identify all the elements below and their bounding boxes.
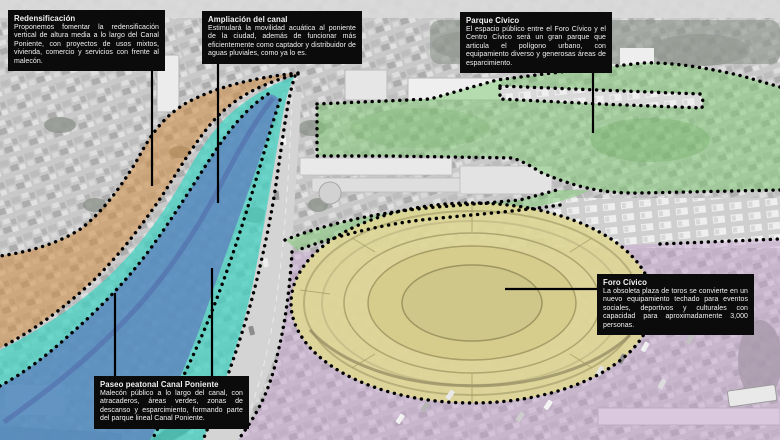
annotation-title: Paseo peatonal Canal Poniente [100, 380, 243, 390]
annotation-ampliacion-canal: Ampliación del canal Estimulará la movil… [202, 11, 362, 64]
annotation-foro-civico: Foro Cívico La obsoleta plaza de toros s… [597, 274, 754, 335]
annotation-body: Estimulará la movilidad acuática al poni… [208, 25, 356, 59]
annotation-paseo-peatonal: Paseo peatonal Canal Poniente Malecón pú… [94, 376, 249, 429]
annotation-body: La obsoleta plaza de toros se convierte … [603, 288, 748, 331]
annotation-title: Parque Cívico [466, 16, 606, 26]
annotation-title: Foro Cívico [603, 278, 748, 288]
annotation-body: Malecón público a lo largo del canal, co… [100, 390, 243, 424]
annotation-parque-civico: Parque Cívico El espacio público entre e… [460, 12, 612, 73]
diagram-canvas: Redensificación Proponemos fomentar la r… [0, 0, 780, 440]
annotation-redensificacion: Redensificación Proponemos fomentar la r… [8, 10, 165, 71]
annotation-body: El espacio público entre el Foro Cívico … [466, 26, 606, 69]
annotation-body: Proponemos fomentar la redensificación v… [14, 24, 159, 67]
annotation-title: Ampliación del canal [208, 15, 356, 25]
annotation-title: Redensificación [14, 14, 159, 24]
